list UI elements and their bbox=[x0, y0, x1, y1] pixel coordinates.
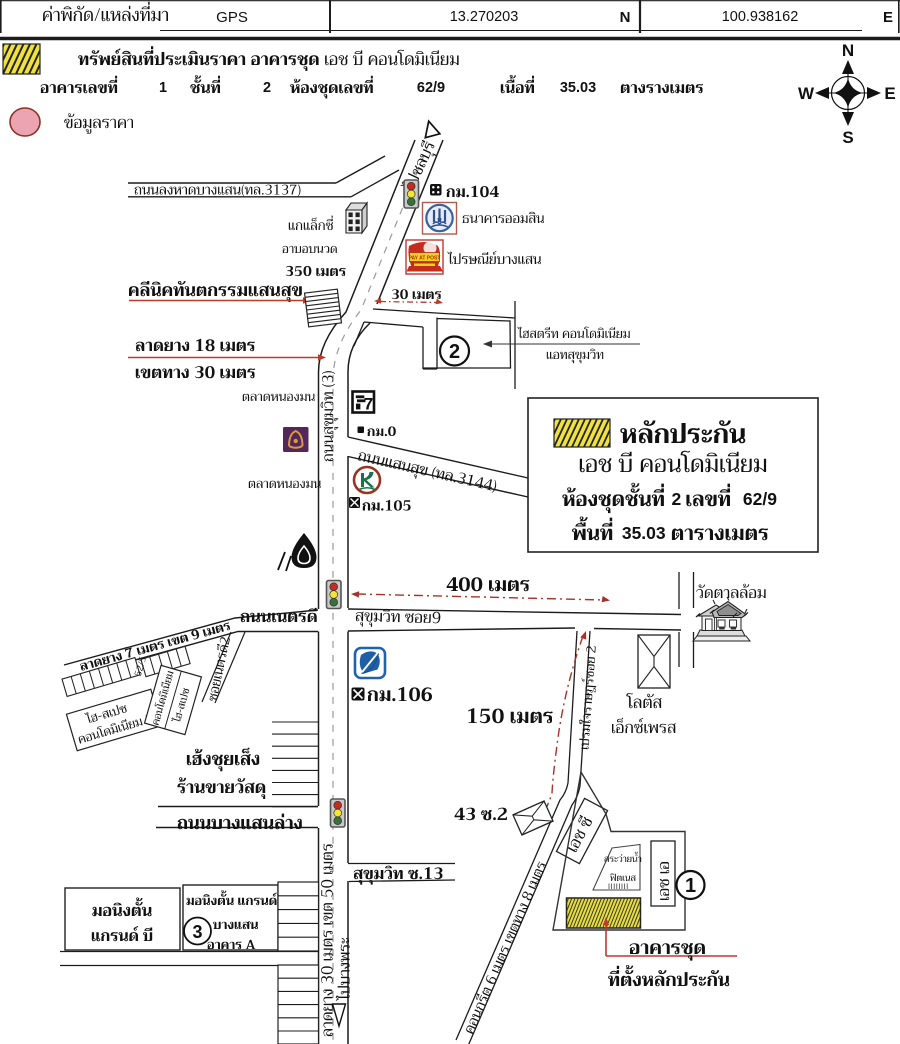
svg-text:1: 1 bbox=[685, 875, 696, 897]
svg-text:N: N bbox=[620, 9, 631, 26]
svg-text:3: 3 bbox=[192, 922, 202, 942]
svg-text:PAY AT POST: PAY AT POST bbox=[409, 256, 441, 262]
svg-text:35.03: 35.03 bbox=[560, 80, 596, 96]
svg-text:N: N bbox=[842, 41, 854, 60]
svg-text:S: S bbox=[842, 128, 853, 147]
svg-text:1: 1 bbox=[159, 80, 167, 96]
svg-text:62/9: 62/9 bbox=[417, 80, 445, 96]
svg-text:100.938162: 100.938162 bbox=[722, 9, 799, 25]
svg-text:2: 2 bbox=[263, 80, 271, 96]
svg-text:7: 7 bbox=[364, 395, 373, 414]
svg-text:13.270203: 13.270203 bbox=[450, 9, 519, 25]
svg-text:62/9: 62/9 bbox=[743, 489, 777, 509]
svg-text:GPS: GPS bbox=[216, 9, 248, 26]
svg-text:2: 2 bbox=[672, 489, 682, 509]
svg-text:E: E bbox=[884, 84, 895, 103]
svg-text:2: 2 bbox=[449, 341, 460, 363]
svg-text:E: E bbox=[883, 9, 893, 26]
svg-text:35.03: 35.03 bbox=[622, 523, 666, 543]
svg-text:W: W bbox=[798, 84, 815, 103]
